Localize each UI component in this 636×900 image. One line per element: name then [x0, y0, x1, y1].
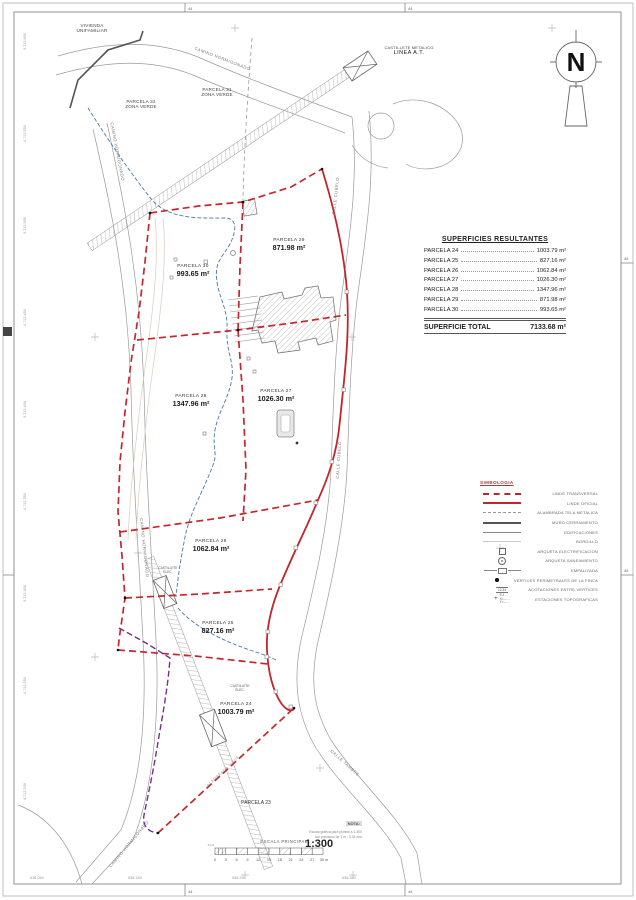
castillete-line: ELEC.: [158, 570, 177, 574]
row-label: PARCELA 24: [424, 248, 458, 254]
scale-tick: 0: [214, 858, 216, 862]
table-row: PARCELA 24 1003.79 m²: [424, 247, 566, 257]
north-letter: N: [567, 47, 586, 77]
legend-item: LINDE TRANSVERSAL: [480, 489, 598, 499]
parcel-area: 827.16 m²: [202, 626, 235, 635]
dotted-leader: [461, 286, 533, 291]
boundary-vertex-squares: [265, 290, 349, 709]
arqueta-saneamiento-icon: [480, 557, 524, 565]
grid-crosses: [91, 24, 556, 879]
grid-coordinate-label: 536.050: [30, 876, 44, 880]
table-row: PARCELA 30 993.65 m²: [424, 306, 566, 316]
surfaces-table-title: SUPERFICIES RESULTANTES: [424, 236, 566, 243]
acotacion-sample: 12.34: [496, 587, 508, 593]
roundabout-loop: [393, 100, 463, 169]
parcela-31-label: PARCELA 31 ZONA VERDE: [201, 87, 233, 97]
row-value: 1347.96 m²: [537, 287, 566, 293]
surfaces-table: SUPERFICIES RESULTANTES PARCELA 24 1003.…: [424, 236, 566, 334]
row-label: PARCELA 28: [424, 287, 458, 293]
row-value: 1026.30 m²: [537, 277, 566, 283]
legend-label: MURO CERRAMIENTO: [524, 520, 598, 525]
legend-label: LINDE OFICIAL: [524, 501, 598, 506]
legend-item: EDIFICACIONES: [480, 527, 598, 537]
scale-tick: 24: [299, 858, 303, 862]
roundabout: [368, 113, 394, 139]
table-rule: [424, 318, 566, 319]
scale-tick: 27: [310, 858, 314, 862]
arqueta-elec-icon: [480, 548, 524, 555]
vivienda-label: VIVIENDA UNIFAMILIAR: [76, 23, 107, 33]
nota-line: con precisión de 1 m : 3.33 mm: [262, 835, 362, 840]
station-text: E-1 X=....... Y=.......: [500, 594, 510, 605]
pylon-icon: [153, 575, 177, 608]
linea-at-line: LINEA A.T.: [384, 50, 433, 56]
grid-coordinate-label: 4.712.200: [23, 783, 27, 800]
parcel-label-27: PARCELA 27 1026.30 m²: [258, 389, 295, 403]
empalizada-icon: [480, 568, 524, 574]
dotted-leader: [461, 257, 537, 262]
parcela-32-label: PARCELA 32 ZONA VERDE: [125, 99, 157, 109]
street-name: CAMINO HORMIGONADO: [108, 819, 150, 868]
grid-coordinate-label: 4.712.250: [23, 677, 27, 694]
legend-label: ARQUETA ELECTRIFICACION: [524, 549, 598, 554]
scale-tick: 30 m: [320, 858, 328, 862]
legend-item: + E-1 X=....... Y=....... ESTACIONES TOP…: [480, 595, 598, 605]
scale-tick: 12: [256, 858, 260, 862]
frame-mark: 44: [188, 6, 193, 11]
grid-coordinate-label: 536.350: [342, 876, 356, 880]
total-label: SUPERFICIE TOTAL: [424, 324, 491, 331]
parcel-area: 871.98 m²: [273, 243, 306, 252]
table-total-row: SUPERFICIE TOTAL 7133.68 m²: [424, 321, 566, 334]
table-row: PARCELA 28 1347.96 m²: [424, 286, 566, 296]
castillete-elec-upper-label: CASTILLETE ELEC.: [158, 566, 177, 574]
row-value: 993.65 m²: [540, 307, 566, 313]
scale-tick: 9: [246, 858, 248, 862]
acotacion-icon: 12.34: [480, 587, 524, 593]
grid-coordinate-label: 4.712.600: [23, 33, 27, 50]
parcel-label-24: PARCELA 24 1003.79 m²: [218, 702, 255, 716]
buildings: [228, 199, 336, 444]
parcel-area: 1062.84 m²: [193, 544, 230, 553]
estacion-icon: + E-1 X=....... Y=.......: [480, 594, 524, 605]
scale-bar: ESCALA PRINCIPAL 1:300 1m 0 0 3 6 9 12 1…: [207, 838, 333, 862]
parcel-label-28: PARCELA 28 1347.96 m²: [173, 394, 210, 408]
scale-tick-labels: 0 3 6 9 12 15 18 21 24 27 30 m: [214, 858, 328, 862]
frame-ticks: [3, 3, 633, 896]
plan-drawing: 44 44 44 44 45 45 4.712.600 4.712.550 4.…: [0, 0, 636, 900]
legend-label: ALAMBRADA TELA METALICA: [524, 510, 598, 515]
legend: SIMBOLOGIA LINDE TRANSVERSAL LINDE OFICI…: [480, 480, 598, 604]
roundabout-approach: [352, 145, 388, 168]
parcel-area: 1347.96 m²: [173, 399, 210, 408]
castillete-at-label: CASTILLETE METALICO LINEA A.T.: [384, 45, 433, 56]
page-border: [3, 3, 633, 896]
table-row: PARCELA 29 871.98 m²: [424, 296, 566, 306]
row-value: 827.16 m²: [540, 258, 566, 264]
row-label: PARCELA 29: [424, 297, 458, 303]
margin-coordinate-labels: 4.712.600 4.712.550 4.712.500 4.712.450 …: [23, 33, 356, 880]
dotted-leader: [461, 267, 533, 272]
scale-tick: 6: [236, 858, 238, 862]
row-label: PARCELA 26: [424, 268, 458, 274]
legend-label: LINDE TRANSVERSAL: [524, 491, 598, 496]
legend-item: MURO CERRAMIENTO: [480, 518, 598, 528]
row-value: 1062.84 m²: [537, 268, 566, 274]
arqueta-icon: [231, 251, 236, 256]
row-value: 871.98 m²: [540, 297, 566, 303]
zone-type: ZONA VERDE: [125, 104, 157, 109]
muro-icon: [480, 522, 524, 524]
legend-title: SIMBOLOGIA: [480, 480, 598, 485]
parcel-area: 993.65 m²: [177, 269, 210, 278]
parcel-label-23: PARCELA 23: [241, 800, 271, 806]
station-y: Y=: [500, 600, 504, 604]
legend-item: ARQUETA ELECTRIFICACION: [480, 547, 598, 557]
grid-coordinate-label: 4.712.450: [23, 309, 27, 326]
legend-label: ESTACIONES TOPOGRAFICAS: [524, 597, 598, 602]
drawing-frame: [14, 12, 621, 884]
table-row: PARCELA 27 1026.30 m²: [424, 276, 566, 286]
boundary-wall: [70, 31, 143, 108]
nota-title: NOTA:: [346, 821, 362, 826]
grid-coordinate-label: 4.712.550: [23, 125, 27, 142]
linde-oficial-icon: [480, 502, 524, 504]
frame-mark: 44: [408, 889, 413, 894]
total-value: 7133.68 m²: [530, 324, 566, 331]
divider-26-25: [125, 589, 272, 598]
scale-subdivision-label: 1m 0: [207, 843, 214, 847]
row-label: PARCELA 30: [424, 307, 458, 313]
legend-item: VERTICES PERIMETRALES DE LA FINCA: [480, 575, 598, 585]
linde-transversal-icon: [480, 493, 524, 495]
legend-label: VERTICES PERIMETRALES DE LA FINCA: [514, 578, 598, 583]
street-name: CAMINO HORMIGONADO: [139, 518, 150, 578]
grid-coordinate-label: 4.712.350: [23, 493, 27, 510]
dotted-leader: [461, 276, 533, 281]
nota-block: NOTA: Escala gráfica para plotear a 1:30…: [262, 812, 362, 840]
grid-coordinate-label: 536.150: [128, 876, 142, 880]
bordillo-icon: [480, 541, 524, 542]
castillete-elec-lower-label: CASTILLETE ELEC.: [230, 684, 249, 692]
station-cross: +: [494, 596, 498, 603]
pool-inner: [281, 415, 290, 432]
legend-item: BORDILLO: [480, 537, 598, 547]
legend-label: EDIFICACIONES: [524, 530, 598, 535]
dotted-leader: [461, 247, 533, 252]
parcel-area: 1003.79 m²: [218, 707, 255, 716]
at-corridor-upper: [87, 51, 377, 251]
north-arrow-icon: N: [550, 30, 602, 126]
street-name: CALLE CUBELO: [331, 177, 340, 215]
legend-item: ARQUETA SANEAMIENTO: [480, 556, 598, 566]
legend-item: LINDE OFICIAL: [480, 499, 598, 509]
scale-tick: 3: [225, 858, 227, 862]
legend-label: ARQUETA SANEAMIENTO: [524, 558, 598, 563]
road-camino-left-edge: [76, 129, 144, 882]
frame-mark: 45: [624, 568, 629, 573]
grid-coordinate-label: 4.712.300: [23, 585, 27, 602]
parcel-label-25: PARCELA 25 827.16 m²: [202, 621, 235, 635]
frame-mark: 44: [408, 6, 413, 11]
row-value: 1003.79 m²: [537, 248, 566, 254]
frame-mark: 45: [624, 256, 629, 261]
legend-item: EMPALIZADA: [480, 566, 598, 576]
road-bottom-left: [18, 805, 82, 884]
vertice-icon: [480, 578, 514, 582]
grid-coordinate-label: 4.712.500: [23, 217, 27, 234]
frame-mark: 44: [188, 889, 193, 894]
main-building: [252, 286, 336, 353]
legend-label: BORDILLO: [524, 539, 598, 544]
grid-coordinate-label: 536.250: [232, 876, 246, 880]
divider-28-27: [238, 330, 246, 521]
stream-line: [88, 108, 276, 660]
plan-sheet: 44 44 44 44 45 45 4.712.600 4.712.550 4.…: [0, 0, 636, 900]
scale-tick: 18: [278, 858, 282, 862]
parcel-label-30: PARCELA 30 993.65 m²: [177, 264, 210, 278]
row-label: PARCELA 27: [424, 277, 458, 283]
parcel-area: 1026.30 m²: [258, 394, 295, 403]
table-row: PARCELA 26 1062.84 m²: [424, 267, 566, 277]
dotted-leader: [461, 296, 537, 301]
lindes-transversales: [118, 169, 346, 833]
dotted-leader: [461, 306, 537, 311]
scale-tick: 15: [267, 858, 271, 862]
scale-tick: 21: [288, 858, 292, 862]
zona-verde-boundary: [243, 38, 252, 200]
row-label: PARCELA 25: [424, 258, 458, 264]
parcel-label-29: PARCELA 29 871.98 m²: [273, 238, 306, 252]
legend-label: EMPALIZADA: [524, 568, 598, 573]
table-row: PARCELA 25 827.16 m²: [424, 257, 566, 267]
vivienda-line: UNIFAMILIAR: [76, 28, 107, 33]
frame-left-mark: [3, 327, 12, 336]
legend-label: ACOTACIONES ENTRE VERTICES: [524, 587, 598, 592]
grid-coordinate-label: 4.712.400: [23, 401, 27, 418]
point-marker: [296, 442, 299, 445]
parcel-label-26: PARCELA 26 1062.84 m²: [193, 539, 230, 553]
alambrada-icon: [480, 512, 524, 513]
scale-bar-segments: [215, 848, 323, 855]
edificaciones-icon: [480, 532, 524, 533]
castillete-line: ELEC.: [230, 688, 249, 692]
legend-item: ALAMBRADA TELA METALICA: [480, 508, 598, 518]
zone-type: ZONA VERDE: [201, 92, 233, 97]
